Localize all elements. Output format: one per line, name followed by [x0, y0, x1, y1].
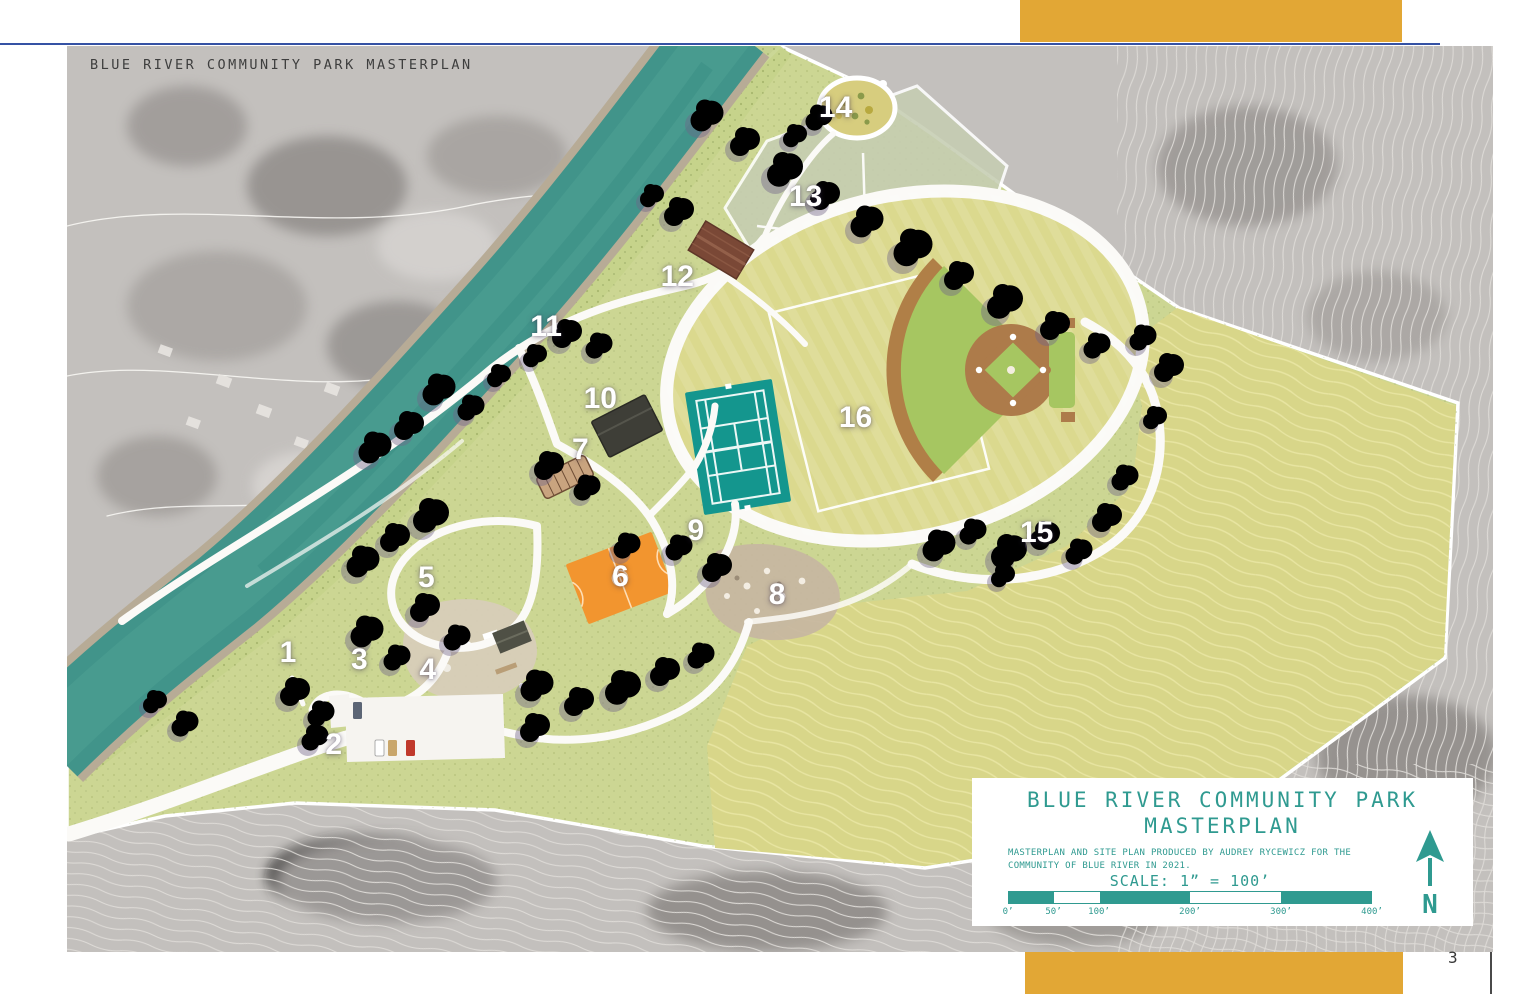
map-number-label-14: 14: [819, 91, 852, 125]
scale-tick: 100’: [1088, 907, 1110, 917]
scale-bar: [1008, 891, 1372, 904]
credit-text: MASTERPLAN AND SITE PLAN PRODUCED BY AUD…: [1008, 847, 1400, 874]
scale-segment: [1190, 892, 1281, 903]
scale-tick: 50’: [1045, 907, 1061, 917]
map-number-label-12: 12: [661, 260, 694, 294]
north-arrow: N: [1410, 830, 1450, 918]
map-number-label-4: 4: [419, 653, 436, 687]
parking-lot: [329, 694, 505, 762]
map-number-label-6: 6: [612, 560, 629, 594]
scale-tick: 400’: [1361, 907, 1383, 917]
map-number-label-2: 2: [325, 728, 342, 762]
gold-accent-bar-top: [1020, 0, 1402, 42]
map-number-label-16: 16: [839, 401, 872, 435]
scale-tick: 200’: [1179, 907, 1201, 917]
map-number-label-15: 15: [1020, 516, 1053, 550]
scale-tick: 300’: [1270, 907, 1292, 917]
title-block-line1: BLUE RIVER COMMUNITY PARK: [972, 787, 1473, 813]
page-title: BLUE RIVER COMMUNITY PARK MASTERPLAN: [90, 57, 473, 73]
crop-mark-line: [1490, 952, 1492, 994]
map-number-label-3: 3: [351, 643, 368, 677]
map-number-label-9: 9: [688, 514, 705, 548]
scale-tick: 0’: [1003, 907, 1014, 917]
map-number-label-13: 13: [789, 180, 822, 214]
scale-segment: [1054, 892, 1099, 903]
blue-rule-line: [0, 43, 1440, 45]
title-block: BLUE RIVER COMMUNITY PARK MASTERPLAN MAS…: [972, 778, 1473, 926]
scale-segment: [1100, 892, 1191, 903]
north-label: N: [1410, 892, 1450, 918]
map-number-label-8: 8: [769, 578, 786, 612]
gold-accent-bar-bottom: [1025, 952, 1403, 994]
scale-ticks: 0’ 50’ 100’ 200’ 300’ 400’: [1008, 907, 1372, 919]
map-number-label-11: 11: [530, 310, 562, 344]
north-arrow-icon: [1414, 830, 1446, 888]
scale-segment: [1009, 892, 1054, 903]
map-number-label-1: 1: [280, 636, 297, 670]
masterplan-page: BLUE RIVER COMMUNITY PARK MASTERPLAN: [0, 0, 1536, 994]
title-block-line2: MASTERPLAN: [972, 813, 1473, 839]
scale-segment: [1281, 892, 1372, 903]
map-number-label-10: 10: [584, 382, 617, 416]
scale-label: SCALE: 1” = 100’: [1008, 872, 1372, 890]
map-number-label-5: 5: [418, 561, 435, 595]
map-number-label-7: 7: [572, 433, 589, 467]
page-number: 3: [1448, 948, 1458, 967]
